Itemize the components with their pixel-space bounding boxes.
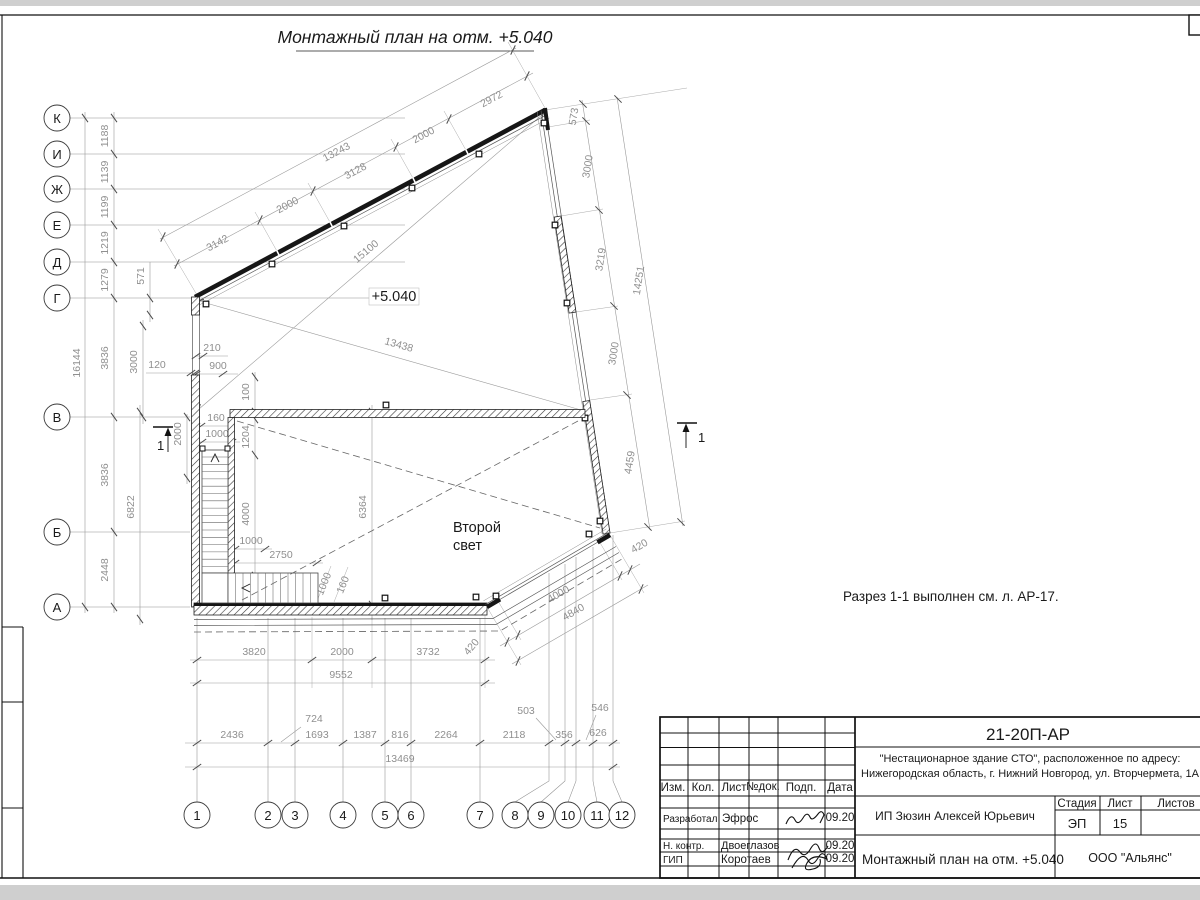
tb-doc-code: 21-20П-АР <box>986 725 1070 744</box>
page-title: Монтажный план на отм. +5.040 <box>278 27 553 47</box>
tb-col-kol: Кол. <box>692 782 715 794</box>
dim: 356 <box>555 729 573 741</box>
void-label-2: свет <box>453 538 482 554</box>
dim: 120 <box>148 359 166 371</box>
dim: 6822 <box>125 495 137 519</box>
dim: 1693 <box>305 729 329 741</box>
axis-col-label: 9 <box>537 808 544 823</box>
tb-stage-label: Стадия <box>1057 798 1096 810</box>
axis-row-label: А <box>53 600 62 615</box>
tb-company: ООО "Альянс" <box>1088 851 1172 865</box>
axis-col-label: 3 <box>291 808 298 823</box>
dim: 2118 <box>503 729 526 741</box>
axis-col-label: 1 <box>193 808 200 823</box>
dim: 1387 <box>353 729 377 741</box>
tb-doc-title: Монтажный план на отм. +5.040 <box>862 852 1064 867</box>
axis-col-label: 8 <box>511 808 518 823</box>
axis-col-label: 7 <box>476 808 483 823</box>
dim: 160 <box>207 412 225 424</box>
dim: 900 <box>209 360 227 372</box>
dim: 6364 <box>357 495 369 519</box>
tb-date-0: 09.20 <box>826 812 855 824</box>
axis-col-label: 11 <box>590 808 604 823</box>
dim: 626 <box>589 727 607 739</box>
tb-col-ndoc: №док. <box>746 781 780 793</box>
dim: 2000 <box>172 422 184 446</box>
axis-row-label: Е <box>53 218 62 233</box>
axis-col-label: 2 <box>264 808 271 823</box>
dim: 1279 <box>99 268 111 292</box>
dim: 2264 <box>434 729 458 741</box>
mezzanine-slab-edge <box>230 410 585 418</box>
section-number: 1 <box>157 438 164 453</box>
dim: 3732 <box>416 646 440 658</box>
dim: 1204 <box>240 425 252 449</box>
tb-project-1: "Нестационарное здание СТО", расположенн… <box>880 753 1181 765</box>
tb-stage-value: ЭП <box>1068 816 1087 831</box>
dim: 4000 <box>240 502 252 526</box>
axis-row-label: Б <box>53 525 62 540</box>
dim: 210 <box>203 342 221 354</box>
axis-row-label: В <box>53 410 62 425</box>
dim: 3820 <box>242 646 266 658</box>
axis-col-label: 4 <box>339 808 346 823</box>
tb-col-data: Дата <box>827 782 853 794</box>
dim: 16144 <box>71 348 83 377</box>
dim: 546 <box>591 702 609 714</box>
section-number: 1 <box>698 430 705 445</box>
corner-doc-box <box>1189 15 1200 35</box>
tb-sheet-value: 15 <box>1113 816 1127 831</box>
dim: 2000 <box>330 646 354 658</box>
axis-row-label: И <box>52 147 61 162</box>
dim: 1188 <box>99 125 111 148</box>
dim: 1199 <box>99 196 111 219</box>
axis-row-label: Д <box>53 255 62 270</box>
dim: 3836 <box>99 346 111 370</box>
elevation-mark: +5.040 <box>369 288 419 305</box>
tb-role-2: ГИП <box>663 855 683 866</box>
dim: 2448 <box>99 558 111 582</box>
dim: 503 <box>517 705 535 717</box>
sheet-frame <box>0 0 1200 900</box>
dim: 2750 <box>269 549 293 561</box>
tb-name-0: Эфрос <box>722 813 759 825</box>
tb-col-izm: Изм. <box>661 782 686 794</box>
dim: 9552 <box>329 669 353 681</box>
axis-row-label: К <box>53 111 61 126</box>
dim: 1000 <box>205 428 229 440</box>
axis-col-label: 12 <box>615 808 629 823</box>
tb-col-podp: Подп. <box>786 782 817 794</box>
axis-row-label: Г <box>53 291 60 306</box>
section-note: Разрез 1-1 выполнен см. л. АР-17. <box>843 589 1059 604</box>
axis-col-label: 6 <box>407 808 414 823</box>
plan-svg: Монтажный план на отм. +5.040 Разрез 1-1… <box>0 0 1200 900</box>
tb-role-1: Н. контр. <box>663 841 704 852</box>
axis-row-label: Ж <box>51 182 63 197</box>
tb-sheet-label: Лист <box>1108 798 1134 810</box>
dim: 2436 <box>220 729 244 741</box>
dim: 100 <box>240 383 252 401</box>
dim: 724 <box>305 713 323 725</box>
dim: 816 <box>391 729 409 741</box>
dim: 1000 <box>239 535 263 547</box>
dim: 1219 <box>99 231 111 255</box>
dim: 3000 <box>128 350 140 374</box>
dim: 1139 <box>99 161 111 184</box>
axis-col-label: 10 <box>561 808 575 823</box>
dim: 13469 <box>385 753 414 765</box>
tb-role-0: Разработал <box>663 813 718 825</box>
tb-date-1: 09.20 <box>826 840 855 852</box>
void-label-1: Второй <box>453 520 501 536</box>
tb-date-2: 09.20 <box>826 853 855 865</box>
tb-col-list: Лист <box>722 782 748 794</box>
dim: 571 <box>135 267 147 285</box>
drawing-sheet: Монтажный план на отм. +5.040 Разрез 1-1… <box>0 0 1200 900</box>
tb-project-2: Нижегородская область, г. Нижний Новгоро… <box>861 768 1200 780</box>
tb-sheets-label: Листов <box>1157 798 1194 810</box>
tb-name-1: Двоеглазов <box>721 840 780 852</box>
elevation-text: +5.040 <box>372 289 417 305</box>
axis-col-label: 5 <box>381 808 388 823</box>
dim: 3836 <box>99 463 111 487</box>
tb-client: ИП Зюзин Алексей Юрьевич <box>875 809 1035 823</box>
tb-name-2: Коротаев <box>721 854 771 866</box>
